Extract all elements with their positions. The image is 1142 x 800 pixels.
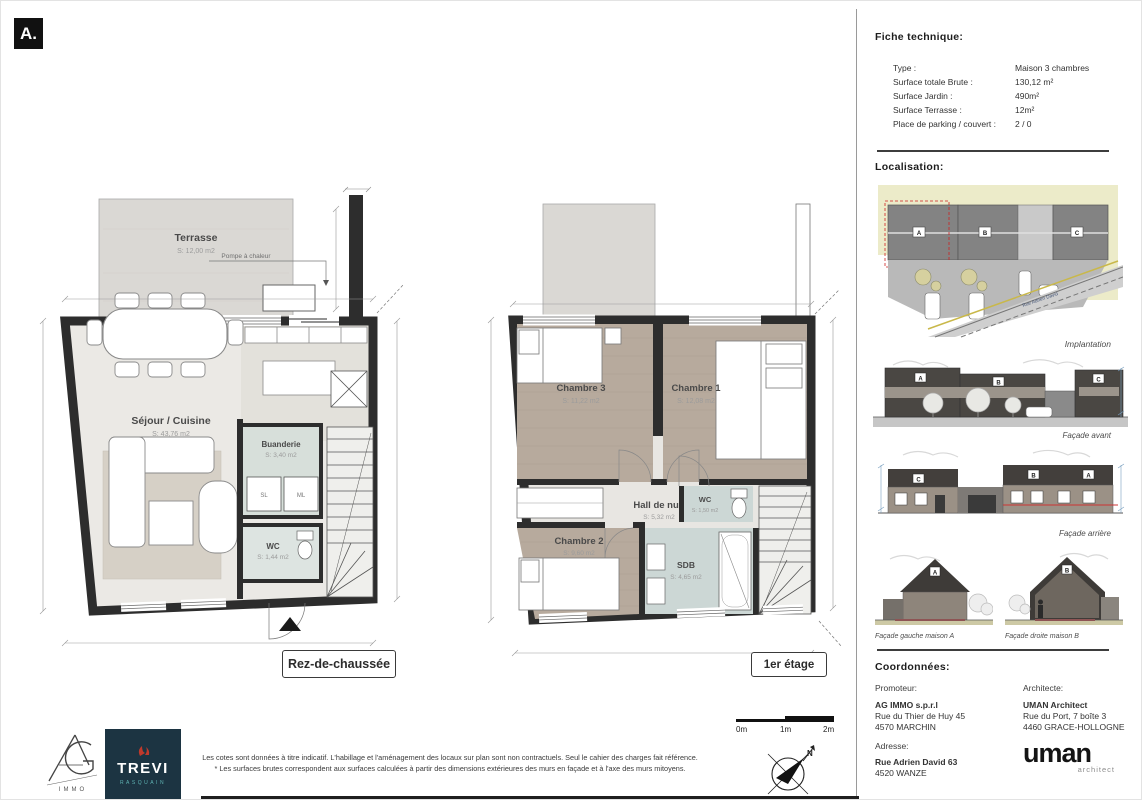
sdb-label: SDB xyxy=(677,560,695,570)
hall-label: Hall de nuit xyxy=(633,500,685,511)
first-floor-title: 1er étage xyxy=(751,652,827,677)
staircase xyxy=(327,427,373,597)
localisation-title: Localisation: xyxy=(875,161,944,173)
fiche-value: 12m² xyxy=(1015,105,1133,115)
sink xyxy=(647,578,665,604)
sejour-area-label: S: 43,76 m2 xyxy=(152,431,190,438)
facade-unit-a: A xyxy=(1086,474,1091,480)
adresse-city: 4520 WANZE xyxy=(875,768,957,779)
trees xyxy=(1009,595,1030,614)
chambre1-area-label: S: 12,08 m2 xyxy=(677,398,715,405)
ground-floor-title: Rez-de-chaussée xyxy=(282,650,396,678)
side-facade-unit-a: A xyxy=(933,571,938,577)
toilet xyxy=(298,541,312,559)
architecte-street: Rue du Port, 7 boîte 3 xyxy=(1023,711,1125,722)
disclaimer-line-1: Les cotes sont données à titre indicatif… xyxy=(169,753,731,764)
ag-immo-logo-subtext: IMMO xyxy=(45,787,101,793)
fiche-value: 490m² xyxy=(1015,91,1133,101)
first-floor-plan-drawing: Chambre 3 S: 11,22 m2 Chambre 1 S: 12,08… xyxy=(481,196,846,686)
hall-area-label: S: 5,32 m2 xyxy=(643,514,675,521)
section-divider xyxy=(877,649,1109,651)
fiche-row: Type :Maison 3 chambres xyxy=(893,63,1133,73)
facade-arriere-drawing: C B A xyxy=(873,447,1128,527)
facade-avant-drawing: A B C xyxy=(873,355,1128,433)
sheet-label-badge: A. xyxy=(14,18,43,49)
ag-immo-logo xyxy=(45,731,101,787)
chambre3-area-label: S: 11,22 m2 xyxy=(562,398,599,405)
wc-area-label: S: 1,44 m2 xyxy=(257,554,289,561)
fiche-label: Surface Jardin : xyxy=(893,91,1015,101)
fiche-label: Place de parking / couvert : xyxy=(893,119,1015,129)
fiche-label: Type : xyxy=(893,63,1015,73)
toilet xyxy=(732,498,746,518)
coordonnees-title: Coordonnées: xyxy=(875,661,950,673)
trevi-logo-text: TREVI xyxy=(117,760,169,777)
wc-area-label: S: 1,50 m2 xyxy=(692,508,719,514)
bed xyxy=(519,558,619,610)
side-facade-unit-b: B xyxy=(1065,569,1070,575)
heat-pump-unit xyxy=(263,285,315,311)
sejour-label: Séjour / Cuisine xyxy=(131,415,211,427)
facade-unit-c: C xyxy=(1096,378,1101,384)
staircase xyxy=(759,486,811,614)
scale-2m: 2m xyxy=(823,725,834,734)
fiche-row: Surface totale Brute :130,12 m² xyxy=(893,77,1133,87)
trees xyxy=(969,594,993,615)
wc-label: WC xyxy=(266,542,280,551)
trevi-logo-subtext: RASQUAIN xyxy=(120,780,166,786)
promoteur-label: Promoteur: xyxy=(875,683,917,693)
heat-pump-label: Pompe à chaleur xyxy=(221,253,271,260)
site-unit-c: C xyxy=(1075,231,1080,237)
scale-0m: 0m xyxy=(736,725,747,734)
car xyxy=(1026,407,1052,417)
fiche-label: Surface totale Brute : xyxy=(893,77,1015,87)
buanderie-area-label: S: 3,40 m2 xyxy=(265,452,297,459)
chambre2-area-label: S: 9,60 m2 xyxy=(563,550,595,557)
fiche-row: Place de parking / couvert :2 / 0 xyxy=(893,119,1133,129)
buanderie-label: Buanderie xyxy=(261,440,301,449)
promoteur-city: 4570 MARCHIN xyxy=(875,722,965,733)
sidebar-divider xyxy=(856,9,857,797)
facade-unit-c: C xyxy=(916,478,921,484)
fiche-value: 130,12 m² xyxy=(1015,77,1133,87)
trevi-logo-glyph xyxy=(133,744,153,758)
implantation-caption: Implantation xyxy=(1001,339,1111,349)
architecte-name: UMAN Architect xyxy=(1023,700,1125,711)
ground-floor-plan-drawing: Terrasse S: 12,00 m2 Pompe à chaleur xyxy=(31,181,441,681)
fiche-row: Surface Jardin :490m² xyxy=(893,91,1133,101)
facade-unit-b: B xyxy=(1031,474,1036,480)
chambre3-label: Chambre 3 xyxy=(556,383,605,394)
adresse-label: Adresse: xyxy=(875,741,909,751)
bathtub xyxy=(719,532,751,610)
facade-unit-a: A xyxy=(918,377,923,383)
fiche-row: Surface Terrasse :12m² xyxy=(893,105,1133,115)
terrace-label: Terrasse xyxy=(174,232,217,244)
wc-label: WC xyxy=(699,495,712,504)
facade-avant-caption: Façade avant xyxy=(991,431,1111,440)
facade-droite-drawing: B xyxy=(1005,547,1123,629)
chambre1-label: Chambre 1 xyxy=(671,383,721,394)
promoteur-name: AG IMMO s.p.r.l xyxy=(875,700,965,711)
sheet-edge-bar xyxy=(201,796,859,800)
chambre2-label: Chambre 2 xyxy=(554,536,603,547)
disclaimer-line-2: * Les surfaces brutes correspondent aux … xyxy=(169,764,731,775)
person-figure xyxy=(1038,605,1043,618)
fiche-technique-title: Fiche technique: xyxy=(875,31,963,43)
plan-sheet: A. Terrasse S: 12,00 m2 Pompe à chaleur xyxy=(0,0,1142,800)
promoteur-address: AG IMMO s.p.r.l Rue du Thier de Huy 45 4… xyxy=(875,700,965,733)
section-divider xyxy=(877,150,1109,152)
fiche-technique-table: Type :Maison 3 chambres Surface totale B… xyxy=(893,63,1133,133)
adresse-street: Rue Adrien David 63 xyxy=(875,757,957,768)
fiche-label: Surface Terrasse : xyxy=(893,105,1015,115)
scale-bar: 0m 1m 2m xyxy=(734,711,836,735)
architecte-address: UMAN Architect Rue du Port, 7 boîte 3 44… xyxy=(1023,700,1125,733)
north-arrow-icon: N xyxy=(763,743,819,799)
disclaimer-text: Les cotes sont données à titre indicatif… xyxy=(169,753,731,775)
site-unit-a: A xyxy=(917,231,922,237)
facade-gauche-drawing: A xyxy=(875,547,993,629)
uman-logo-text: uman xyxy=(1023,741,1115,765)
site-plan: A B C Rue Adrien David xyxy=(873,177,1123,339)
uman-logo: uman architect xyxy=(1023,741,1115,774)
architecte-label: Architecte: xyxy=(1023,683,1063,693)
scale-1m: 1m xyxy=(780,725,791,734)
site-unit-b: B xyxy=(983,231,988,237)
fiche-value: 2 / 0 xyxy=(1015,119,1133,129)
terrace-roof xyxy=(543,204,655,316)
facade-unit-b: B xyxy=(996,381,1001,387)
facade-gauche-caption: Façade gauche maison A xyxy=(875,633,993,640)
sdb-area-label: S: 4,65 m2 xyxy=(670,574,702,581)
appliance-label-ml: ML xyxy=(297,493,306,499)
appliance-label-sl: SL xyxy=(260,493,268,499)
entrance-marker xyxy=(279,617,301,631)
north-label: N xyxy=(807,749,813,758)
facade-arriere-caption: Façade arrière xyxy=(991,529,1111,538)
facade-droite-caption: Façade droite maison B xyxy=(1005,633,1123,640)
fiche-value: Maison 3 chambres xyxy=(1015,63,1133,73)
projet-address: Rue Adrien David 63 4520 WANZE xyxy=(875,757,957,779)
promoteur-street: Rue du Thier de Huy 45 xyxy=(875,711,965,722)
architecte-city: 4460 GRACE-HOLLOGNE xyxy=(1023,722,1125,733)
sink xyxy=(647,544,665,570)
terrace-area-label: S: 12,00 m2 xyxy=(177,248,215,255)
